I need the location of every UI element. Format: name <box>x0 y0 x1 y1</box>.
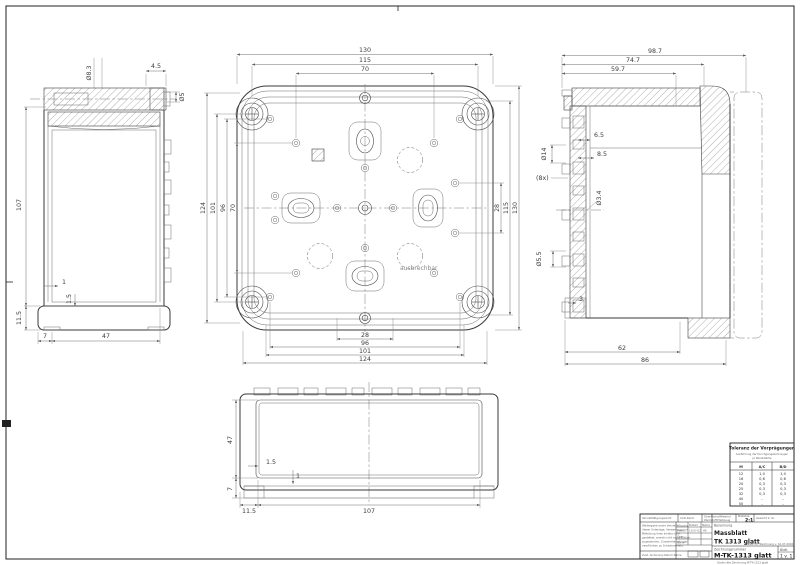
drawing-title-1: Massblatt <box>714 530 747 537</box>
stamp-box <box>688 551 698 557</box>
tolerance-table: Toleranz der Vorprägungen Ausführung der… <box>729 443 795 506</box>
dim-label: 28 <box>494 204 501 212</box>
row-date: 10.07.02 <box>689 529 701 533</box>
scale-label: Maßstab <box>738 514 750 518</box>
dim-label: Ø5.5 <box>535 252 543 267</box>
dim-label: 11.5 <box>16 311 23 325</box>
phantom-cover <box>730 92 762 338</box>
datum-header: Datum <box>689 523 698 527</box>
title-block-cell: Gewicht in Gr. <box>756 516 775 520</box>
hatched-pad <box>312 149 324 161</box>
tol-cell: 1,0 <box>780 472 786 476</box>
dim-label: 74.7 <box>626 57 640 64</box>
front-view: ausbrechbar 130 115 70 124 101 96 <box>200 47 522 365</box>
dim-label: 1 <box>296 473 300 480</box>
dim-label: 96 <box>361 340 369 347</box>
bottom-view: 47 7 11.5 107 1.5 1 <box>227 382 498 515</box>
tol-cell: 0,6 <box>780 477 786 481</box>
ersatz-note: Ersatz für: Zeichnung v. 10.07.2002 <box>745 542 793 546</box>
tol-cell: 32 <box>739 492 744 496</box>
tol-cell: 0,3 <box>759 482 765 486</box>
tol-cell: – <box>761 497 763 501</box>
right-side-view: 98.7 74.7 59.7 Ø14 6.5 8.5 (8x) Ø3.4 Ø5.… <box>535 48 762 366</box>
dim-label: 11.5 <box>242 508 256 515</box>
dim-label: Ø3.4 <box>595 191 603 206</box>
tol-cell: 0,3 <box>759 487 765 491</box>
dim-label: 107 <box>363 508 375 515</box>
tol-cell: 0,3 <box>759 492 765 496</box>
dim-label: 124 <box>359 356 371 363</box>
row-label: Bearb. <box>677 529 686 533</box>
tolerance-rows: 121,01,0 160,60,6 200,30,3 250,30,3 320,… <box>739 472 787 506</box>
dim-label: 4.5 <box>151 63 161 70</box>
dim-label: 124 <box>200 202 207 214</box>
benennung-label: Benennung <box>714 524 732 528</box>
dim-label: 115 <box>503 202 510 214</box>
drawing-number: M-TK-1313 glatt <box>714 552 772 560</box>
drawing-sheet: ausbrechbar 130 115 70 124 101 96 <box>0 0 800 565</box>
dim-label: 62 <box>618 345 626 352</box>
row-label: Gepr. <box>677 535 684 539</box>
dim-label: 98.7 <box>648 48 662 55</box>
tolerance-table-subtitle: je Wandstärke <box>751 456 771 460</box>
tol-cell: 50 <box>739 502 744 506</box>
dim-label: (8x) <box>536 175 549 182</box>
dim-label: 101 <box>359 348 371 355</box>
knockout-strip <box>562 106 586 318</box>
tol-cell: 0,3 <box>780 482 786 486</box>
dim-label: 86 <box>641 357 649 364</box>
row-name: HK <box>703 529 707 533</box>
dim-label: 130 <box>512 202 519 214</box>
front-view-dims-bottom: 28 96 101 124 <box>243 302 487 365</box>
tol-cell: 1,0 <box>759 472 765 476</box>
print-footer: Gedruckte Zeichnung M-TK-1313 glatt <box>717 561 768 565</box>
left-side-view: Ø8.3 4.5 Ø5 107 11.5 7 47 1 1.5 <box>16 58 186 344</box>
tol-cell: 0,3 <box>780 492 786 496</box>
title-block-cell: Vervielfältigungsrecht <box>642 516 671 520</box>
side-knockout-bumps <box>164 140 171 282</box>
tol-cell: 0,3 <box>780 487 786 491</box>
tolerance-col-header: A/C <box>759 465 766 469</box>
dim-label: 6.5 <box>594 132 604 139</box>
dim-label: 1.5 <box>66 294 73 304</box>
dim-label: 3 <box>579 296 583 303</box>
scale-value: 2:1 <box>745 518 753 524</box>
dim-label: 8.5 <box>597 151 607 158</box>
tol-cell: 12 <box>739 472 744 476</box>
dim-label: Ø5 <box>178 93 186 102</box>
sheet-number: 1 v. 1 <box>780 554 792 560</box>
tolerance-table-title: Toleranz der Vorprägungen <box>729 446 795 452</box>
tol-cell: – <box>761 502 763 506</box>
tolerance-col-header: M <box>739 465 743 469</box>
row-label: Norm <box>677 541 685 545</box>
name-header: Name <box>702 523 710 527</box>
tol-cell: – <box>782 497 784 501</box>
dim-label: 115 <box>359 57 371 64</box>
title-block-cell: CAD-Zeich. <box>680 516 695 520</box>
dim-label: 96 <box>220 204 227 212</box>
tol-cell: 16 <box>739 477 744 481</box>
dim-label: Ø14 <box>540 148 548 161</box>
dim-label: 59.7 <box>611 66 625 73</box>
dim-label: 107 <box>16 199 23 211</box>
tol-cell: 40 <box>739 497 744 501</box>
sheet-label: Blatt <box>780 548 788 552</box>
dim-label: 47 <box>227 436 234 444</box>
title-block: Vervielfältigungsrecht CAD-Zeich. Oberfl… <box>640 514 794 565</box>
dim-label: 7 <box>227 487 234 491</box>
tol-cell: 20 <box>739 482 744 486</box>
dim-label: 70 <box>230 204 237 212</box>
title-block-cell: Werkstoff/Halbzeug <box>704 518 731 522</box>
dim-label: 70 <box>361 66 369 73</box>
dim-label: 101 <box>210 202 217 214</box>
dim-label: 130 <box>359 47 371 54</box>
dim-label: 28 <box>361 332 369 339</box>
dim-label: 47 <box>102 333 110 340</box>
revision-row: Zust. Änderung Datum Name <box>642 552 682 557</box>
fold-mark <box>2 420 11 427</box>
dim-label: 7 <box>43 333 47 340</box>
tol-cell: – <box>782 502 784 506</box>
dim-label: Ø8.3 <box>85 66 93 81</box>
stamp-box <box>700 551 709 557</box>
dim-label: 1 <box>62 279 66 286</box>
dim-label: 1.5 <box>266 459 276 466</box>
tol-cell: 25 <box>739 487 744 491</box>
tolerance-col-header: B/D <box>779 465 786 469</box>
knockout-note: ausbrechbar <box>400 265 438 272</box>
tol-cell: 0,6 <box>759 477 765 481</box>
